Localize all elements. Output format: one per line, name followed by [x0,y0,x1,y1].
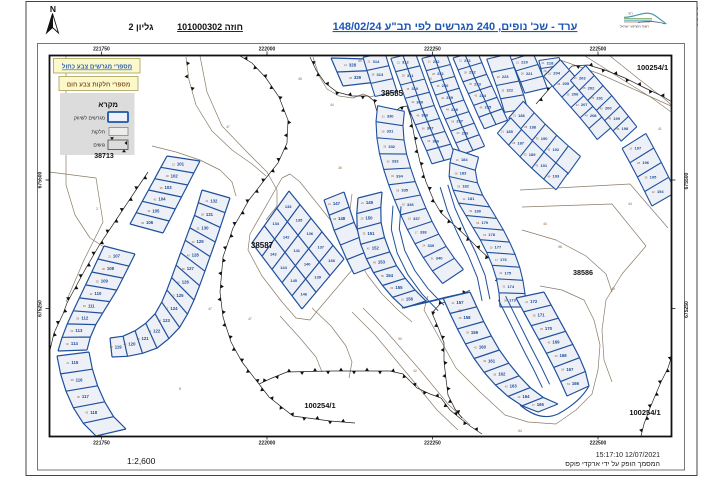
svg-text:..רמי: ..רמי [626,12,633,16]
svg-text:222000: 222000 [259,441,276,447]
svg-text:83: 83 [458,309,462,313]
svg-text:675250: 675250 [38,300,44,317]
svg-text:329: 329 [354,75,362,80]
svg-text:337: 337 [413,216,420,221]
svg-text:237: 237 [456,119,463,124]
svg-text:180: 180 [474,208,481,213]
svg-text:196: 196 [642,160,649,165]
svg-text:236: 236 [462,130,469,135]
svg-text:47: 47 [248,317,252,321]
svg-text:152: 152 [372,246,380,251]
svg-text:144: 144 [280,265,287,270]
svg-text:118: 118 [90,410,98,415]
svg-text:177: 177 [495,245,502,250]
svg-text:340: 340 [436,256,443,261]
svg-text:206: 206 [572,92,579,97]
svg-text:44: 44 [543,222,547,226]
svg-text:188: 188 [529,124,536,129]
svg-text:333: 333 [392,159,399,164]
svg-text:141: 141 [293,248,300,253]
svg-text:45: 45 [298,77,302,81]
svg-text:127: 127 [187,266,195,271]
svg-text:44: 44 [330,103,334,107]
svg-text:138: 138 [328,258,335,263]
svg-text:198: 198 [622,126,629,131]
svg-text:192: 192 [552,147,559,152]
svg-text:148: 148 [338,216,346,221]
svg-text:מספרי חלקות צבע חום: מספרי חלקות צבע חום [67,81,131,89]
svg-text:182: 182 [462,184,469,189]
svg-text:234: 234 [479,93,486,98]
svg-text:159: 159 [471,330,479,335]
svg-text:231: 231 [464,58,471,63]
svg-text:207: 207 [581,102,588,107]
svg-text:181: 181 [468,196,475,201]
svg-text:157: 157 [456,300,464,305]
svg-text:113: 113 [75,328,83,333]
svg-text:146: 146 [300,291,307,296]
svg-text:122: 122 [153,328,161,333]
svg-text:109: 109 [101,279,109,284]
svg-text:123: 123 [163,318,171,323]
svg-text:104: 104 [158,197,166,202]
svg-text:129: 129 [197,239,205,244]
svg-text:128: 128 [192,253,200,258]
svg-text:221750: 221750 [93,441,110,447]
svg-text:143: 143 [270,252,277,257]
svg-text:334: 334 [396,173,403,178]
svg-text:131: 131 [206,212,214,217]
svg-text:309: 309 [416,99,423,104]
svg-text:235: 235 [485,105,492,110]
svg-text:38713: 38713 [94,153,114,160]
svg-text:1:2,600: 1:2,600 [127,456,156,466]
svg-text:130: 130 [201,226,209,231]
svg-text:203: 203 [579,75,586,80]
svg-text:189: 189 [529,152,536,157]
svg-text:240: 240 [442,83,449,88]
svg-text:184: 184 [461,157,468,162]
svg-text:38587: 38587 [251,241,274,250]
svg-text:168: 168 [560,353,568,358]
svg-text:119: 119 [115,344,123,349]
svg-text:102: 102 [171,173,179,178]
svg-text:328: 328 [349,62,357,67]
svg-text:311: 311 [407,73,414,78]
svg-text:241: 241 [437,71,444,76]
svg-text:156: 156 [406,297,414,302]
svg-text:המסמך הופק על ידי ארקדי פוקס: המסמך הופק על ידי ארקדי פוקס [565,460,660,468]
svg-text:64: 64 [518,429,522,433]
svg-text:307: 307 [427,126,434,131]
svg-text:2: 2 [96,207,98,211]
svg-text:153: 153 [378,260,386,265]
svg-text:139: 139 [314,275,321,280]
svg-text:158: 158 [463,315,471,320]
svg-text:338: 338 [420,230,427,235]
svg-text:167: 167 [566,367,574,372]
svg-text:125: 125 [176,293,184,298]
svg-text:187: 187 [517,140,524,145]
svg-text:ערד - שכ' נופים, 240 מגרשים לפ: ערד - שכ' נופים, 240 מגרשים לפי תב"ע 148… [333,20,578,33]
svg-text:107: 107 [113,254,121,259]
svg-text:306: 306 [432,138,439,143]
svg-text:165: 165 [537,402,545,407]
svg-text:336: 336 [407,202,414,207]
svg-text:149: 149 [366,200,374,205]
svg-text:108: 108 [107,266,115,271]
svg-text:N: N [50,4,56,14]
svg-text:126: 126 [182,280,190,285]
svg-text:137: 137 [317,244,324,249]
svg-text:103: 103 [165,185,173,190]
svg-text:38585: 38585 [381,89,404,98]
svg-text:47: 47 [226,125,230,129]
svg-text:172: 172 [530,299,538,304]
svg-text:335: 335 [401,188,408,193]
svg-text:222500: 222500 [590,441,607,447]
svg-text:173: 173 [509,298,516,303]
svg-text:100254/1: 100254/1 [637,63,668,72]
svg-text:174: 174 [507,284,514,289]
svg-text:194: 194 [657,189,664,194]
svg-text:186: 186 [518,113,525,118]
svg-text:176: 176 [500,257,507,262]
svg-text:47: 47 [208,307,212,311]
svg-text:40: 40 [428,77,432,81]
svg-text:161: 161 [488,358,496,363]
svg-text:232: 232 [469,70,476,75]
svg-text:120: 120 [128,342,136,347]
svg-text:8: 8 [179,387,181,391]
svg-text:242: 242 [433,59,440,64]
svg-text:185: 185 [506,129,513,134]
svg-text:154: 154 [386,273,394,278]
svg-text:45: 45 [611,287,615,291]
svg-text:238: 238 [451,107,458,112]
svg-text:308: 308 [421,113,428,118]
svg-text:105: 105 [152,208,160,213]
svg-text:166: 166 [572,381,580,386]
svg-text:204: 204 [553,71,560,76]
svg-text:134: 134 [272,221,279,226]
svg-text:גושים: גושים [93,143,105,149]
svg-text:332: 332 [388,144,395,149]
svg-text:222: 222 [506,88,513,93]
svg-text:132: 132 [210,198,218,203]
svg-text:178: 178 [488,232,495,237]
svg-text:90: 90 [398,337,402,341]
svg-text:101: 101 [177,162,185,167]
svg-text:155: 155 [395,285,403,290]
svg-text:44: 44 [628,202,632,206]
svg-text:310: 310 [412,86,419,91]
svg-text:200: 200 [605,106,612,111]
svg-text:312: 312 [402,60,409,65]
svg-text:220: 220 [521,60,528,65]
svg-text:314: 314 [373,59,380,64]
svg-text:190: 190 [541,136,548,141]
svg-text:111: 111 [88,303,95,308]
svg-text:221: 221 [526,71,533,76]
svg-text:110: 110 [94,291,102,296]
svg-text:330: 330 [387,114,394,119]
svg-text:124: 124 [170,306,178,311]
svg-text:115: 115 [71,360,79,365]
svg-text:201: 201 [596,95,603,100]
svg-text:חוזה 101000302: חוזה 101000302 [177,22,243,32]
svg-text:183: 183 [460,171,467,176]
svg-text:191: 191 [540,163,547,168]
svg-text:223: 223 [502,74,509,79]
svg-text:218: 218 [547,60,554,65]
svg-text:339: 339 [427,243,434,248]
svg-text:170: 170 [545,326,553,331]
svg-text:193: 193 [553,174,560,179]
svg-text:100254/1: 100254/1 [304,401,335,410]
svg-text:42: 42 [413,369,417,373]
svg-text:202: 202 [588,85,595,90]
svg-text:140: 140 [304,261,311,266]
svg-text:חלקות: חלקות [91,129,105,136]
svg-text:208: 208 [590,113,597,118]
svg-text:162: 162 [498,372,506,377]
svg-text:233: 233 [474,81,481,86]
svg-text:675500: 675500 [684,172,690,189]
svg-text:58: 58 [558,245,562,249]
svg-text:163: 163 [510,384,518,389]
svg-text:מקרא: מקרא [98,100,118,109]
svg-text:331: 331 [387,129,394,134]
svg-text:112: 112 [81,316,89,321]
svg-text:38586: 38586 [573,268,593,277]
svg-text:41: 41 [658,127,662,131]
svg-text:151: 151 [367,231,375,236]
svg-text:313: 313 [377,72,384,77]
svg-text:675500: 675500 [38,171,44,188]
svg-text:171: 171 [538,313,546,318]
svg-text:133: 133 [285,204,292,209]
svg-text:136: 136 [306,231,313,236]
svg-text:100254/1: 100254/1 [629,408,660,417]
svg-text:160: 160 [479,345,487,350]
svg-text:239: 239 [446,95,453,100]
svg-text:145: 145 [290,278,297,283]
svg-text:117: 117 [82,394,90,399]
svg-text:121: 121 [142,336,150,341]
svg-text:60: 60 [358,59,362,63]
svg-text:205: 205 [562,81,569,86]
svg-text:222250: 222250 [424,441,441,447]
svg-text:142: 142 [283,235,290,240]
svg-text:15:17:10 12/07/2021: 15:17:10 12/07/2021 [596,452,660,459]
svg-text:106: 106 [146,220,154,225]
svg-text:147: 147 [333,201,341,206]
svg-text:175: 175 [504,270,511,275]
svg-text:179: 179 [481,220,488,225]
svg-text:195: 195 [650,175,657,180]
svg-text:36: 36 [338,166,342,170]
svg-text:135: 135 [296,217,303,222]
svg-text:169: 169 [552,340,560,345]
svg-text:מגרשים לשיווק: מגרשים לשיווק [74,115,106,122]
svg-text:199: 199 [613,116,620,121]
svg-text:116: 116 [76,377,84,382]
svg-text:גליון 2: גליון 2 [129,22,155,32]
svg-text:מספרי מגרשים צבע כחול: מספרי מגרשים צבע כחול [62,63,132,71]
svg-text:197: 197 [635,146,642,151]
svg-text:150: 150 [365,216,373,221]
svg-text:114: 114 [71,341,79,346]
svg-text:164: 164 [522,394,530,399]
svg-text:רשות מקרקעי ישראל: רשות מקרקעי ישראל [620,25,650,29]
svg-text:675250: 675250 [684,301,690,318]
